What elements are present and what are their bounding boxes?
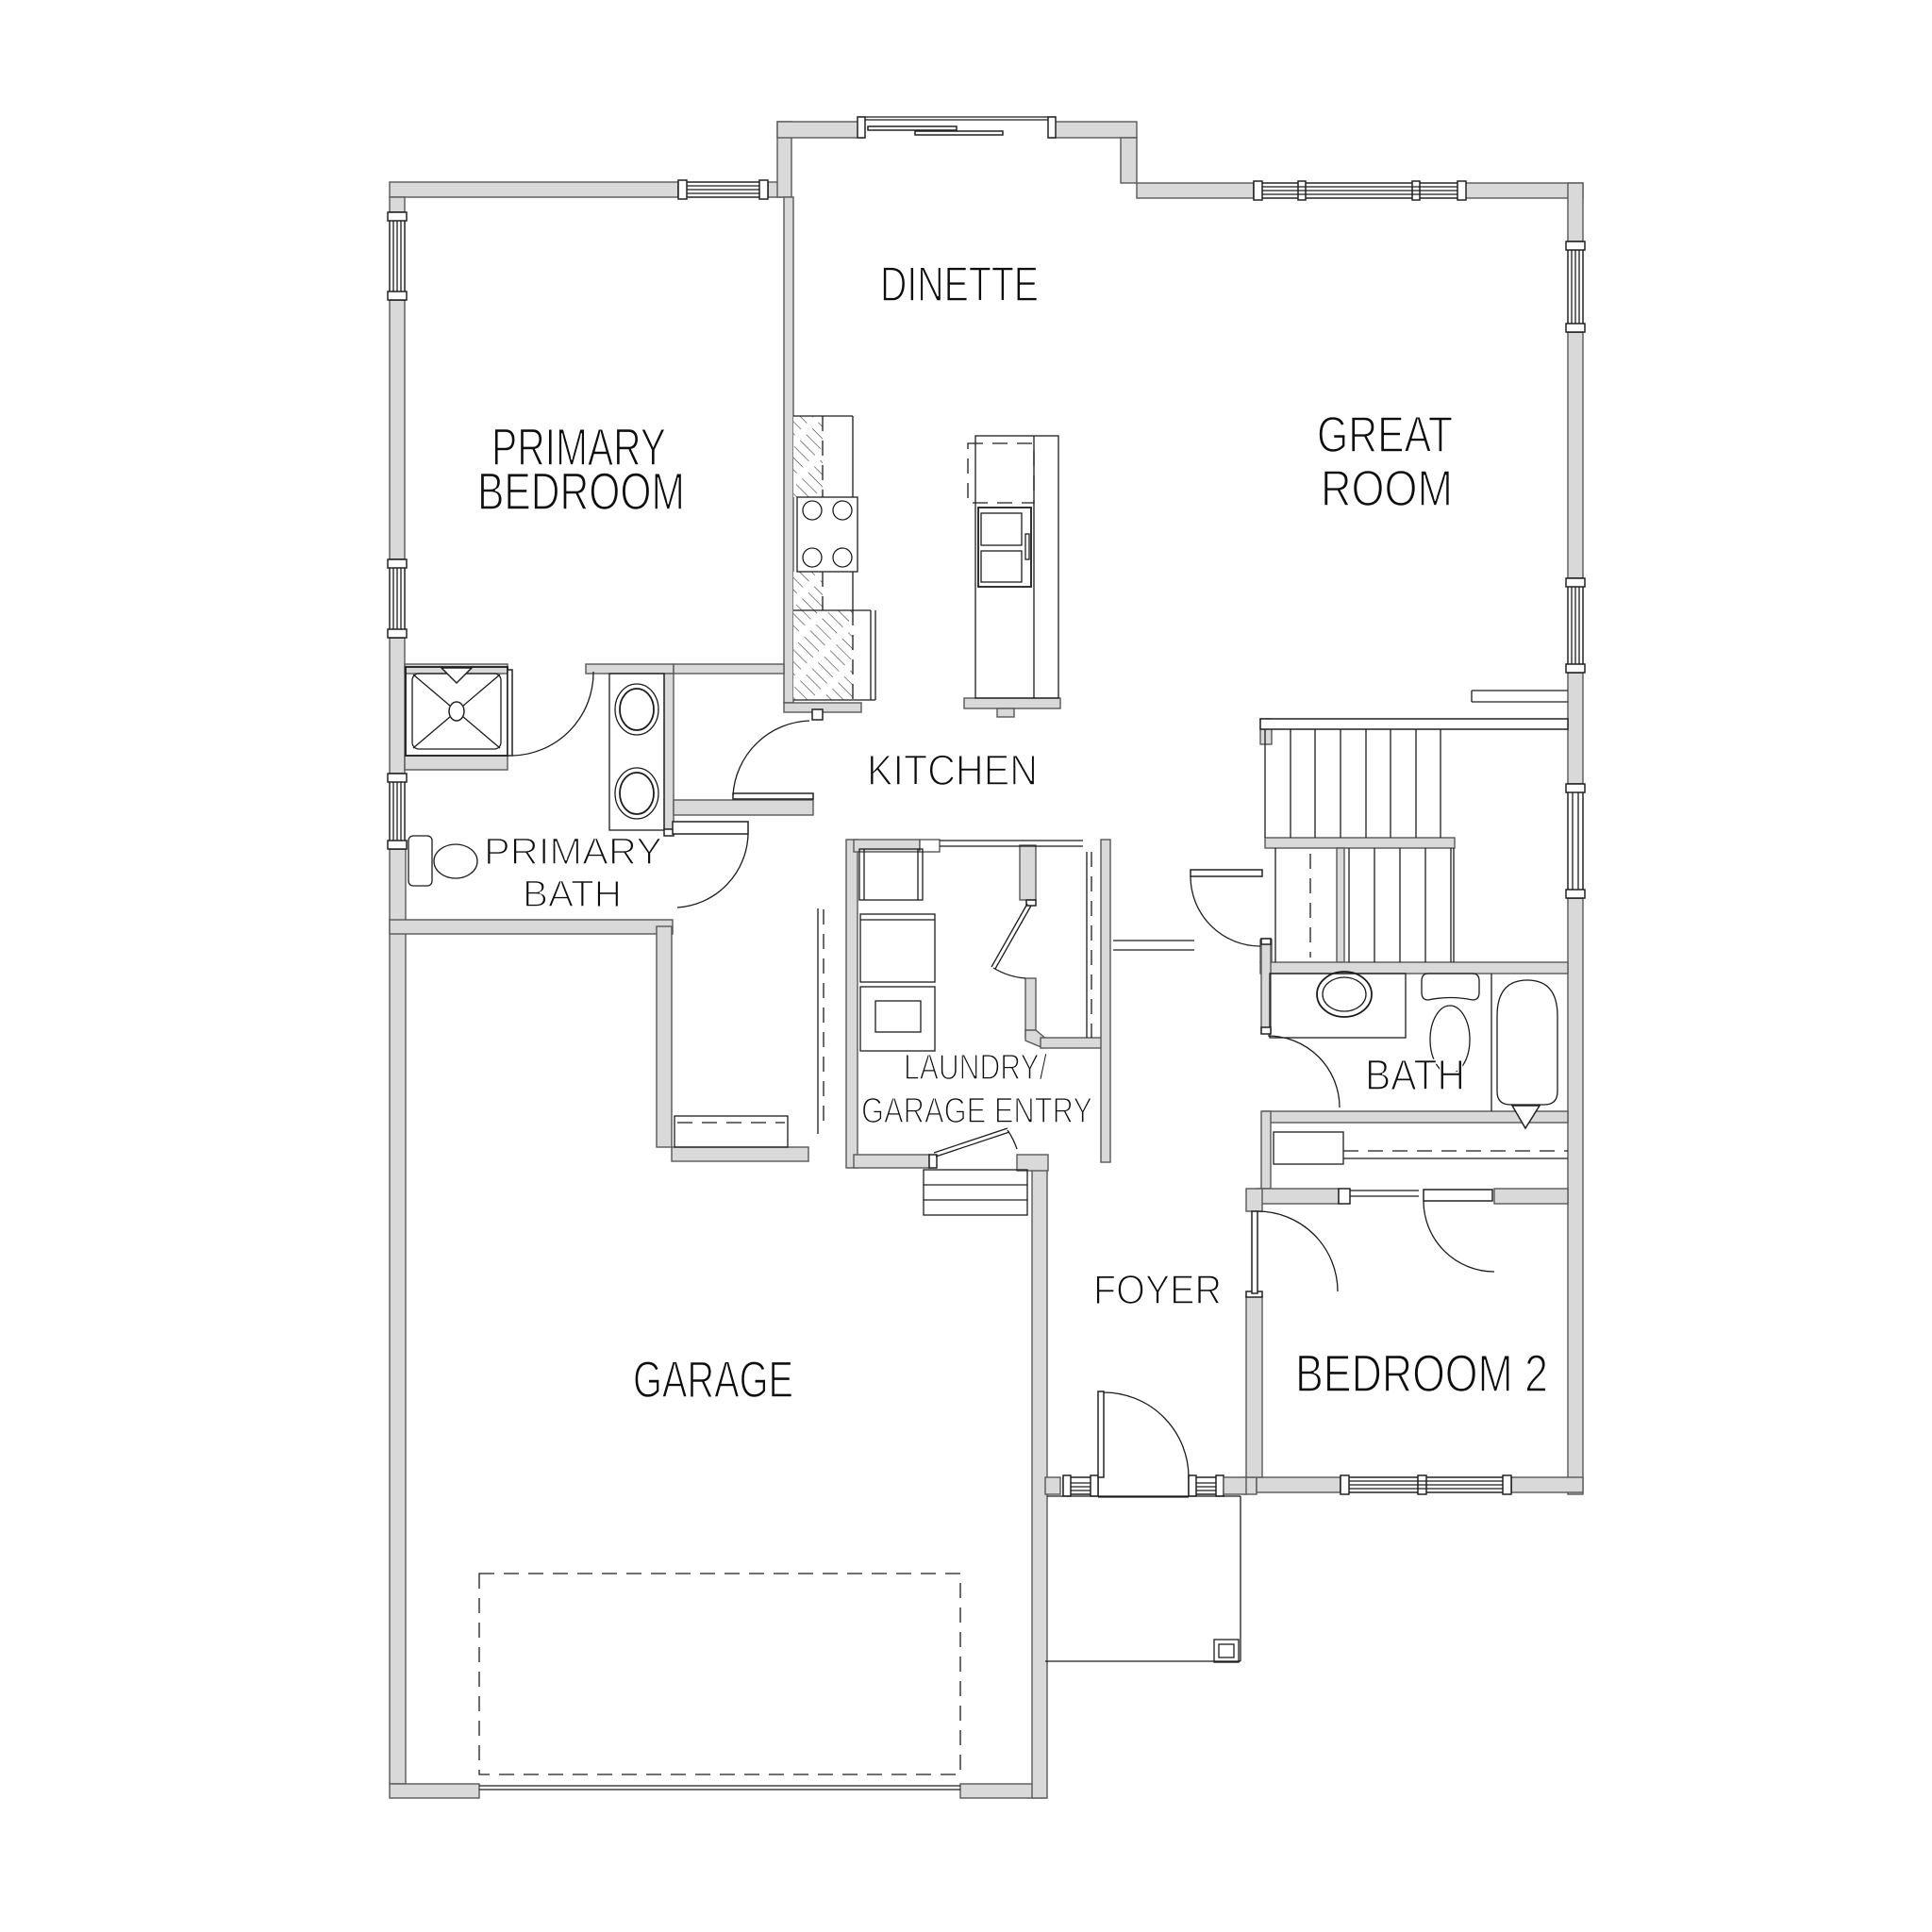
svg-text:BEDROOM: BEDROOM bbox=[477, 461, 685, 521]
svg-text:GREAT: GREAT bbox=[1317, 407, 1453, 463]
svg-text:ROOM: ROOM bbox=[1321, 460, 1453, 517]
svg-text:GARAGE ENTRY: GARAGE ENTRY bbox=[861, 1091, 1092, 1131]
svg-text:GARAGE: GARAGE bbox=[633, 1350, 793, 1408]
svg-text:BATH: BATH bbox=[523, 874, 622, 915]
svg-text:FOYER: FOYER bbox=[1093, 1267, 1222, 1313]
svg-text:BEDROOM 2: BEDROOM 2 bbox=[1295, 1343, 1548, 1403]
svg-text:LAUNDRY/: LAUNDRY/ bbox=[904, 1048, 1047, 1088]
svg-text:DINETTE: DINETTE bbox=[880, 258, 1039, 312]
svg-text:KITCHEN: KITCHEN bbox=[867, 746, 1038, 794]
svg-text:BATH: BATH bbox=[1365, 1051, 1465, 1099]
svg-text:PRIMARY: PRIMARY bbox=[484, 831, 662, 873]
